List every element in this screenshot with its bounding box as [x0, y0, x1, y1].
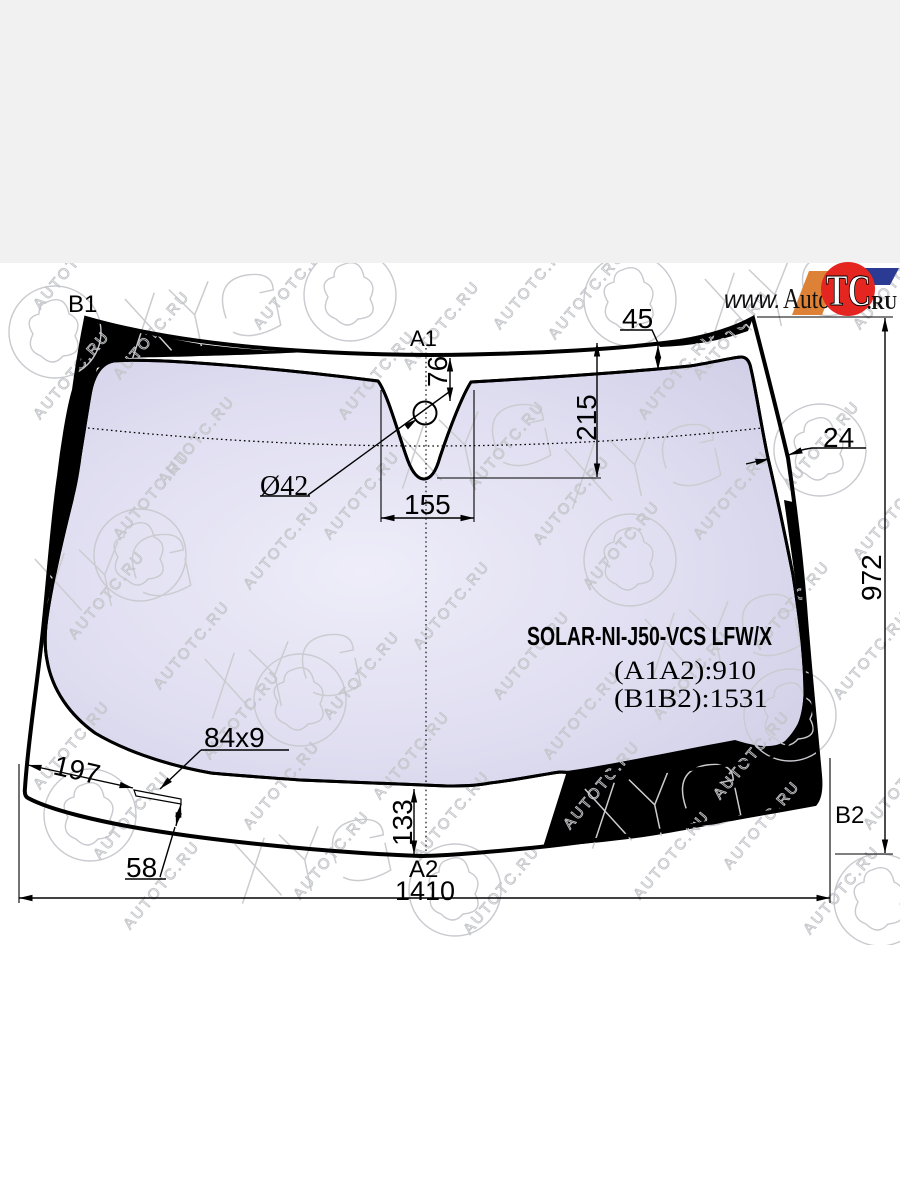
svg-text:Ø42: Ø42: [260, 471, 308, 502]
svg-text:(B1B2):1531: (B1B2):1531: [614, 684, 768, 713]
svg-text:B1: B1: [68, 291, 97, 318]
svg-text:1410: 1410: [395, 876, 455, 906]
svg-text:133: 133: [387, 799, 418, 846]
svg-text:.RU: .RU: [867, 292, 897, 314]
svg-text:155: 155: [404, 489, 451, 520]
svg-text:www.: www.: [724, 284, 781, 314]
svg-text:45: 45: [622, 303, 653, 334]
svg-text:76: 76: [422, 356, 453, 387]
svg-text:A1: A1: [410, 326, 437, 351]
svg-text:TC: TC: [826, 266, 871, 315]
svg-text:58: 58: [126, 852, 157, 883]
svg-text:972: 972: [856, 554, 887, 601]
svg-text:84x9: 84x9: [204, 722, 265, 753]
svg-text:24: 24: [823, 422, 854, 453]
svg-text:B2: B2: [835, 802, 864, 829]
svg-text:215: 215: [571, 394, 602, 441]
svg-text:SOLAR-NI-J50-VCS LFW/X: SOLAR-NI-J50-VCS LFW/X: [527, 621, 772, 651]
svg-text:(A1A2):910: (A1A2):910: [614, 656, 756, 685]
